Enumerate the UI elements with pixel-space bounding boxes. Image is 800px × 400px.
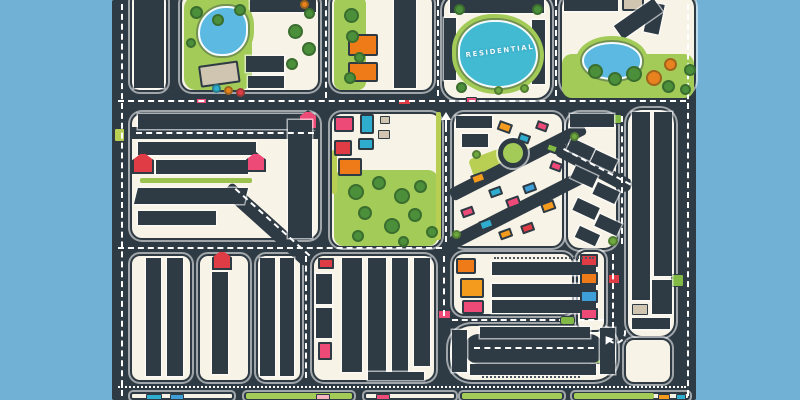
building <box>358 138 374 150</box>
building <box>334 140 352 156</box>
path <box>436 112 441 240</box>
house-column <box>316 308 332 338</box>
house-numbers <box>482 376 580 378</box>
building <box>334 116 354 132</box>
car-icon <box>560 316 575 325</box>
hedge <box>140 178 252 183</box>
house-numbers <box>494 257 594 259</box>
building <box>360 114 374 134</box>
tree-icon <box>408 208 422 222</box>
house-row <box>480 327 590 338</box>
house <box>376 394 390 400</box>
park-lawn <box>574 393 654 399</box>
road-centerline <box>443 256 445 316</box>
house-column <box>146 258 161 376</box>
house-row <box>456 116 492 128</box>
crosswalk-marking <box>608 274 620 284</box>
house-row <box>564 0 618 11</box>
legend-swatch <box>626 340 628 342</box>
tree-icon <box>426 226 438 238</box>
road-tile <box>114 128 125 142</box>
house <box>146 394 162 400</box>
house-column <box>652 280 672 314</box>
road-centerline <box>118 386 686 388</box>
road-centerline <box>305 256 307 378</box>
building <box>460 278 484 298</box>
building <box>380 116 390 124</box>
tree-icon <box>588 64 603 79</box>
tree-icon <box>234 4 246 16</box>
house-row <box>570 114 614 127</box>
house-column <box>212 272 228 374</box>
park-lawn <box>462 393 562 399</box>
tree-icon <box>352 230 364 242</box>
tree-icon <box>212 14 224 26</box>
house <box>580 272 598 285</box>
house-column <box>414 258 430 366</box>
house-column <box>134 0 164 88</box>
house-row <box>368 372 424 380</box>
tree-icon <box>186 38 196 48</box>
road-centerline <box>687 4 689 396</box>
road-centerline <box>452 319 604 321</box>
house-column <box>394 0 416 88</box>
road-centerline <box>118 100 686 102</box>
path <box>332 150 337 194</box>
road-centerline <box>474 347 594 349</box>
road-centerline <box>136 132 314 134</box>
road-centerline <box>445 126 447 242</box>
tree-icon <box>344 8 359 23</box>
house-column <box>280 258 294 376</box>
house <box>318 258 334 269</box>
tree-icon <box>662 80 675 93</box>
building <box>632 304 648 315</box>
road-centerline <box>121 4 123 396</box>
tree-icon <box>684 64 696 76</box>
building <box>338 158 362 176</box>
house-row <box>632 318 670 329</box>
house-row <box>470 364 596 375</box>
house <box>580 290 598 303</box>
house-column <box>260 258 275 376</box>
tree-icon <box>532 4 543 15</box>
house-column <box>632 112 650 300</box>
house-row <box>462 134 488 147</box>
building <box>462 300 484 314</box>
park-lawn <box>246 393 352 399</box>
house-row <box>134 188 248 204</box>
road-centerline <box>612 254 614 328</box>
tree-icon <box>664 58 677 71</box>
tree-icon <box>344 72 356 84</box>
tree-icon <box>454 4 465 15</box>
road-tile <box>671 274 684 287</box>
house-row <box>138 211 216 225</box>
color-legend-tile <box>624 338 672 384</box>
bush-icon <box>520 84 529 93</box>
bush-icon <box>472 150 481 159</box>
house-column <box>452 330 467 372</box>
tree-icon <box>456 82 467 93</box>
bush-icon <box>608 236 618 246</box>
tree-icon <box>300 0 309 9</box>
tree-icon <box>346 30 359 43</box>
bush-icon <box>494 86 503 95</box>
bush-icon <box>224 86 233 95</box>
north-arrow-icon <box>441 112 451 130</box>
house-column <box>368 258 386 372</box>
tree-icon <box>190 6 203 19</box>
road-centerline <box>437 0 439 96</box>
building <box>456 258 476 274</box>
bush-icon <box>570 132 579 141</box>
road-centerline <box>325 0 327 98</box>
house-row <box>138 142 256 155</box>
house-column <box>654 112 672 276</box>
house-row <box>246 56 284 72</box>
building <box>378 130 390 139</box>
house <box>658 394 670 400</box>
house-column <box>288 120 312 238</box>
tree-icon <box>398 236 409 247</box>
house <box>316 394 330 400</box>
tree-icon <box>608 72 622 86</box>
house-column <box>167 258 183 376</box>
tree-icon <box>646 70 662 86</box>
bush-icon <box>212 84 221 93</box>
house <box>676 394 686 400</box>
house-row <box>248 76 284 88</box>
house-row <box>156 160 248 174</box>
bush-icon <box>236 88 245 97</box>
house <box>318 342 332 360</box>
tree-icon <box>304 8 315 19</box>
tree-icon <box>358 206 372 220</box>
tree-icon <box>680 84 691 95</box>
house-column <box>392 258 408 372</box>
house <box>580 254 598 267</box>
tree-icon <box>394 188 410 204</box>
tree-icon <box>348 184 364 200</box>
road-centerline <box>555 0 557 96</box>
residential-map-illustration: RESIDENTIAL <box>0 0 800 400</box>
house-column <box>316 274 332 304</box>
tree-icon <box>286 58 298 70</box>
culdesac-loop <box>464 334 604 364</box>
tree-icon <box>302 42 316 56</box>
tree-icon <box>384 218 400 234</box>
house <box>170 394 184 400</box>
tree-icon <box>414 180 427 193</box>
house-column <box>342 258 362 372</box>
tree-icon <box>288 24 303 39</box>
tree-icon <box>372 176 386 190</box>
tree-icon <box>626 66 642 82</box>
bush-icon <box>452 230 461 239</box>
tree-icon <box>354 52 365 63</box>
road-centerline <box>118 247 442 249</box>
